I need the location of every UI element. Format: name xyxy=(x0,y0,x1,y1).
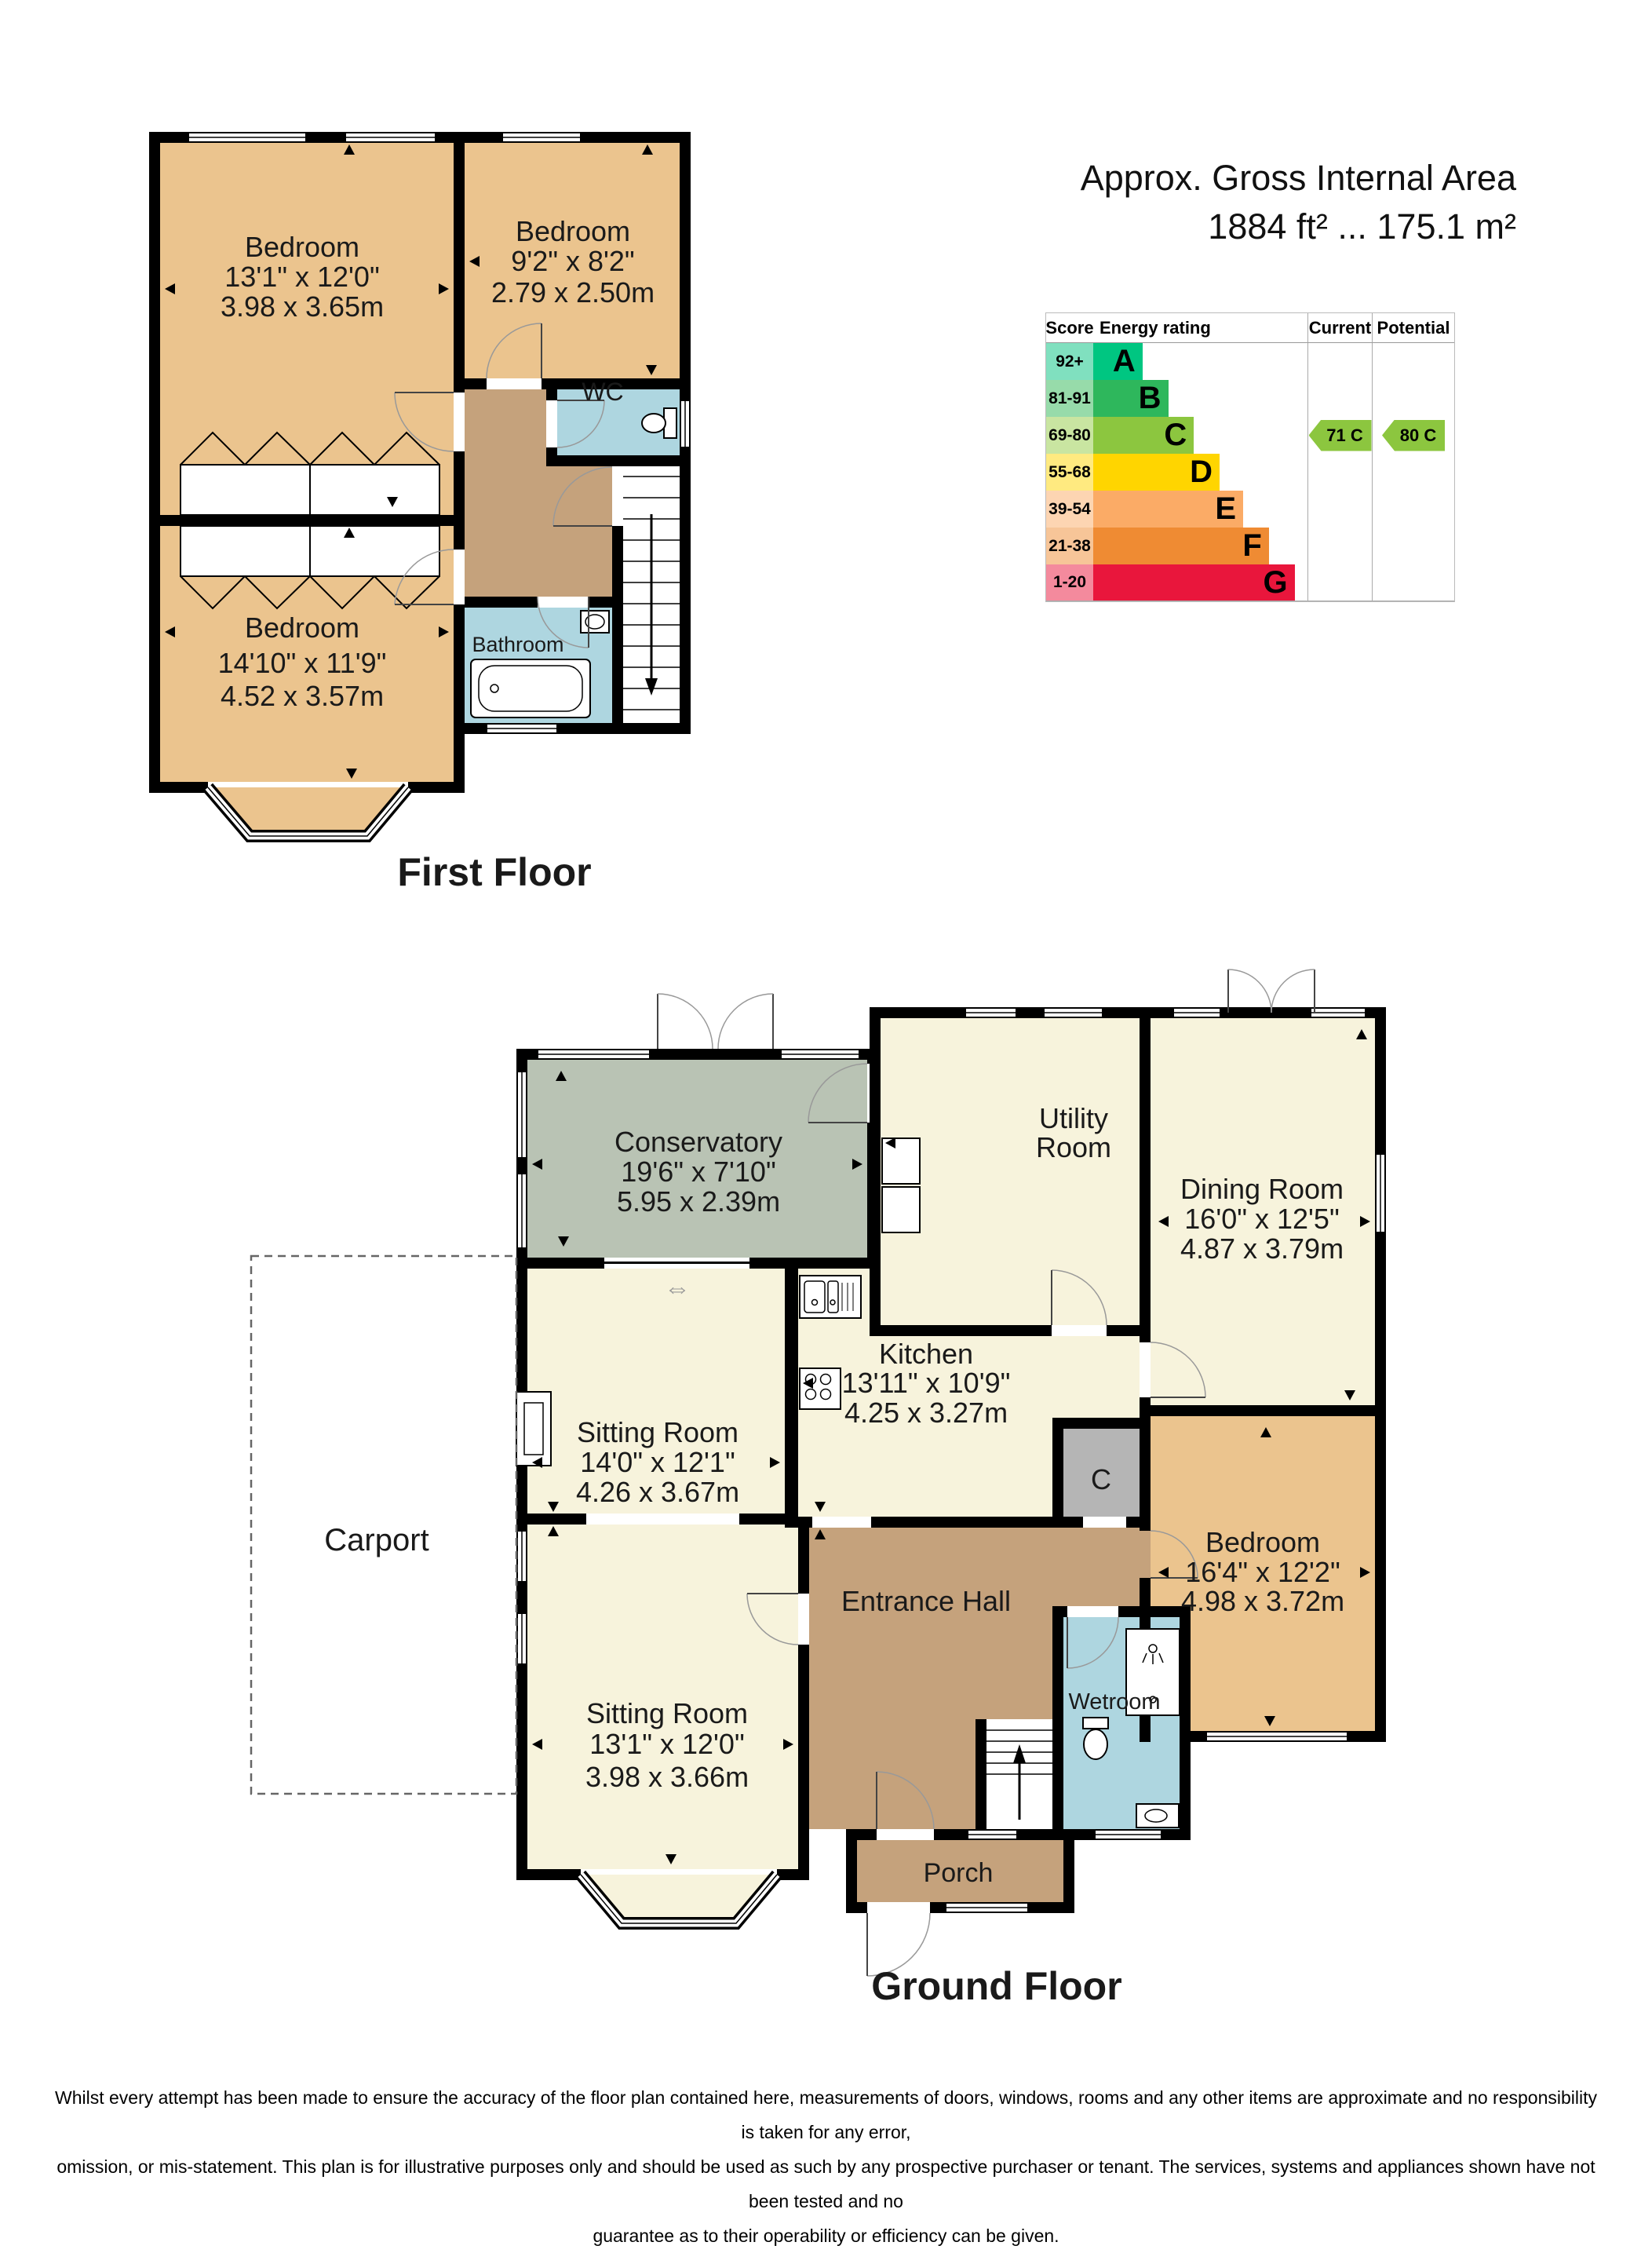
toilet xyxy=(1084,1729,1107,1759)
bedroom3-imperial: 14'10" x 11'9" xyxy=(218,647,387,679)
disclaimer-line-2: omission, or mis-statement. This plan is… xyxy=(47,2149,1605,2218)
bedroom1-metric: 3.98 x 3.65m xyxy=(221,290,384,323)
dining-imperial: 16'0" x 12'5" xyxy=(1184,1203,1339,1235)
bedroom2-imperial: 9'2" x 8'2" xyxy=(511,245,634,277)
porch-label: Porch xyxy=(924,1858,994,1888)
epc-band-f-bar: F xyxy=(1093,528,1307,564)
ground-floor-title: Ground Floor xyxy=(871,1964,1121,2008)
hall-corridor xyxy=(1052,1528,1151,1606)
first-floor-plan: Bedroom 13'1" x 12'0" 3.98 x 3.65m Bedro… xyxy=(78,63,746,973)
wetroom-label: Wetroom xyxy=(1068,1689,1160,1714)
area-title: Approx. Gross Internal Area xyxy=(981,154,1516,203)
epc-band-f-score: 21-38 xyxy=(1046,528,1093,564)
utility-line2: Room xyxy=(1036,1131,1111,1163)
epc-band-c-score: 69-80 xyxy=(1046,417,1093,454)
epc-score-header: Score xyxy=(1046,313,1093,343)
bathtub xyxy=(471,659,590,718)
kitchen-sink-unit xyxy=(800,1276,861,1318)
gf-bedroom-imperial: 16'4" x 12'2" xyxy=(1185,1556,1340,1588)
utility-appliance xyxy=(882,1138,920,1184)
epc-band-g-score: 1-20 xyxy=(1046,564,1093,601)
gf-bedroom-name: Bedroom xyxy=(1205,1526,1320,1558)
epc-potential-arrow: 80 C xyxy=(1382,420,1445,451)
bedroom2-metric: 2.79 x 2.50m xyxy=(491,276,655,309)
basin xyxy=(1136,1804,1179,1828)
kitchen-imperial: 13'11" x 10'9" xyxy=(842,1367,1011,1399)
bedroom3-metric: 4.52 x 3.57m xyxy=(221,680,384,712)
toilet-cistern xyxy=(1083,1718,1108,1729)
carport-label: Carport xyxy=(324,1523,428,1557)
entrance-hall-label: Entrance Hall xyxy=(841,1585,1011,1617)
disclaimer-line-1: Whilst every attempt has been made to en… xyxy=(47,2080,1605,2149)
wc-label: WC xyxy=(582,378,623,406)
bedroom2-name: Bedroom xyxy=(516,215,630,247)
disclaimer: Whilst every attempt has been made to en… xyxy=(47,2080,1605,2253)
bedroom1-imperial: 13'1" x 12'0" xyxy=(224,261,379,293)
landing-fill xyxy=(465,466,612,597)
slider-symbol: ⇔ xyxy=(664,1273,691,1303)
conservatory-imperial: 19'6" x 7'10" xyxy=(621,1156,775,1188)
disclaimer-line-3: guarantee as to their operability or eff… xyxy=(47,2218,1605,2253)
sitting2-name: Sitting Room xyxy=(586,1697,748,1729)
landing-fill xyxy=(465,389,546,466)
epc-band-a-score: 92+ xyxy=(1046,343,1093,380)
room-kitchen xyxy=(1052,1336,1140,1418)
epc-band-e-score: 39-54 xyxy=(1046,491,1093,528)
epc-chart: Score Energy rating Current Potential 92… xyxy=(1045,312,1455,602)
epc-band-d-bar: D xyxy=(1093,454,1307,491)
dining-name: Dining Room xyxy=(1180,1173,1344,1205)
epc-rating-header: Energy rating xyxy=(1093,313,1307,343)
gross-internal-area: Approx. Gross Internal Area 1884 ft² ...… xyxy=(981,154,1516,251)
sitting1-imperial: 14'0" x 12'1" xyxy=(580,1446,735,1478)
epc-band-g-bar: G xyxy=(1093,564,1307,601)
epc-band-c-bar: C xyxy=(1093,417,1307,454)
sitting2-metric: 3.98 x 3.66m xyxy=(585,1761,749,1793)
area-value: 1884 ft² ... 175.1 m² xyxy=(981,203,1516,251)
first-floor-title: First Floor xyxy=(397,850,591,894)
sitting1-name: Sitting Room xyxy=(577,1416,738,1448)
bathroom-label: Bathroom xyxy=(472,633,563,656)
epc-band-b-bar: B xyxy=(1093,380,1307,417)
epc-band-e-bar: E xyxy=(1093,491,1307,528)
sitting1-metric: 4.26 x 3.67m xyxy=(576,1476,739,1508)
kitchen-metric: 4.25 x 3.27m xyxy=(844,1397,1008,1429)
utility-line1: Utility xyxy=(1039,1102,1108,1134)
epc-band-b-score: 81-91 xyxy=(1046,380,1093,417)
utility-appliance xyxy=(882,1187,920,1232)
epc-current-cell xyxy=(1307,343,1372,380)
kitchen-name: Kitchen xyxy=(879,1338,973,1370)
gf-bedroom-metric: 4.98 x 3.72m xyxy=(1181,1585,1344,1617)
epc-current-arrow: 71 C xyxy=(1309,420,1372,451)
sitting2-imperial: 13'1" x 12'0" xyxy=(589,1728,744,1760)
epc-potential-header: Potential xyxy=(1372,313,1454,343)
epc-current-header: Current xyxy=(1307,313,1372,343)
epc-potential-cell xyxy=(1372,343,1454,380)
kitchen-hob xyxy=(800,1368,841,1409)
epc-band-a-bar: A xyxy=(1093,343,1307,380)
room-bedroom-1 xyxy=(160,143,454,515)
bedroom3-name: Bedroom xyxy=(245,612,359,644)
epc-band-d-score: 55-68 xyxy=(1046,454,1093,491)
cupboard-label: C xyxy=(1091,1463,1111,1495)
ground-floor-plan: ⇔ Conservatory 19'6" x 7'10" 5.95 x 2.39… xyxy=(235,989,1507,2088)
conservatory-name: Conservatory xyxy=(614,1126,782,1158)
bedroom1-name: Bedroom xyxy=(245,231,359,263)
toilet xyxy=(642,414,666,433)
dining-metric: 4.87 x 3.79m xyxy=(1180,1232,1344,1265)
conservatory-metric: 5.95 x 2.39m xyxy=(617,1185,780,1218)
